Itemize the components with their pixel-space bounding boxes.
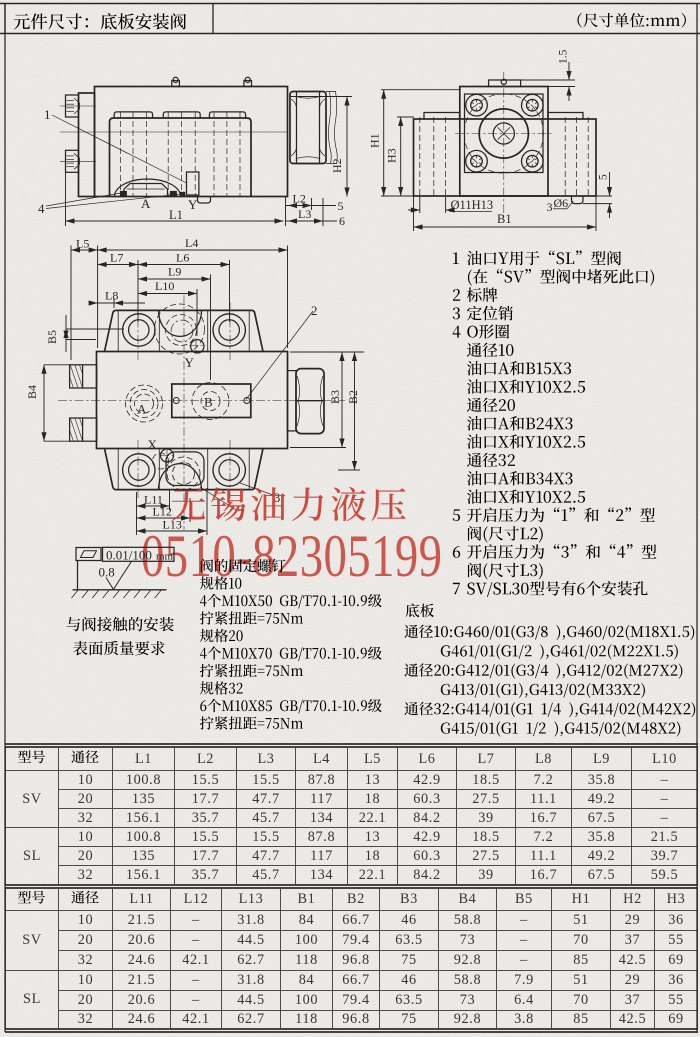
svg-text:5: 5: [598, 174, 610, 180]
svg-text:L5: L5: [76, 237, 89, 251]
svg-text:L10: L10: [155, 279, 174, 293]
svg-text:H3: H3: [385, 148, 399, 163]
svg-text:2: 2: [311, 303, 318, 318]
svg-text:mm: mm: [156, 551, 174, 563]
svg-text:5: 5: [338, 199, 344, 213]
svg-text:L13: L13: [163, 518, 182, 532]
svg-text:4: 4: [38, 201, 45, 216]
svg-text:L7: L7: [110, 251, 123, 265]
svg-text:B4: B4: [25, 385, 39, 399]
svg-text:L3: L3: [298, 207, 311, 221]
svg-text:1.5: 1.5: [558, 49, 570, 64]
svg-text:L2: L2: [293, 192, 306, 206]
svg-text:Y: Y: [188, 197, 198, 212]
svg-text:A: A: [141, 196, 151, 211]
svg-text:H2: H2: [330, 158, 344, 173]
svg-text:B3: B3: [328, 390, 342, 404]
svg-text:L1: L1: [169, 208, 183, 222]
svg-text:L4: L4: [185, 236, 198, 250]
svg-text:H1: H1: [368, 133, 382, 148]
svg-text:0.01/100: 0.01/100: [106, 548, 152, 563]
svg-text:1: 1: [44, 107, 51, 122]
svg-text:L6: L6: [176, 251, 189, 265]
svg-text:B5: B5: [45, 330, 59, 344]
svg-text:Ø11H13: Ø11H13: [451, 198, 494, 212]
svg-text:X: X: [148, 437, 158, 452]
svg-text:Ø6: Ø6: [554, 196, 569, 210]
svg-text:L12: L12: [153, 505, 172, 519]
svg-text:Y: Y: [185, 355, 195, 370]
svg-text:L9: L9: [168, 265, 181, 279]
svg-text:B2: B2: [346, 390, 360, 404]
svg-text:L8: L8: [105, 289, 118, 303]
svg-text:B: B: [204, 395, 213, 410]
svg-text:6: 6: [339, 214, 345, 228]
svg-text:A: A: [137, 402, 147, 417]
svg-text:B1: B1: [497, 212, 512, 226]
svg-text:3: 3: [547, 200, 553, 214]
svg-text:0.8: 0.8: [99, 565, 115, 580]
